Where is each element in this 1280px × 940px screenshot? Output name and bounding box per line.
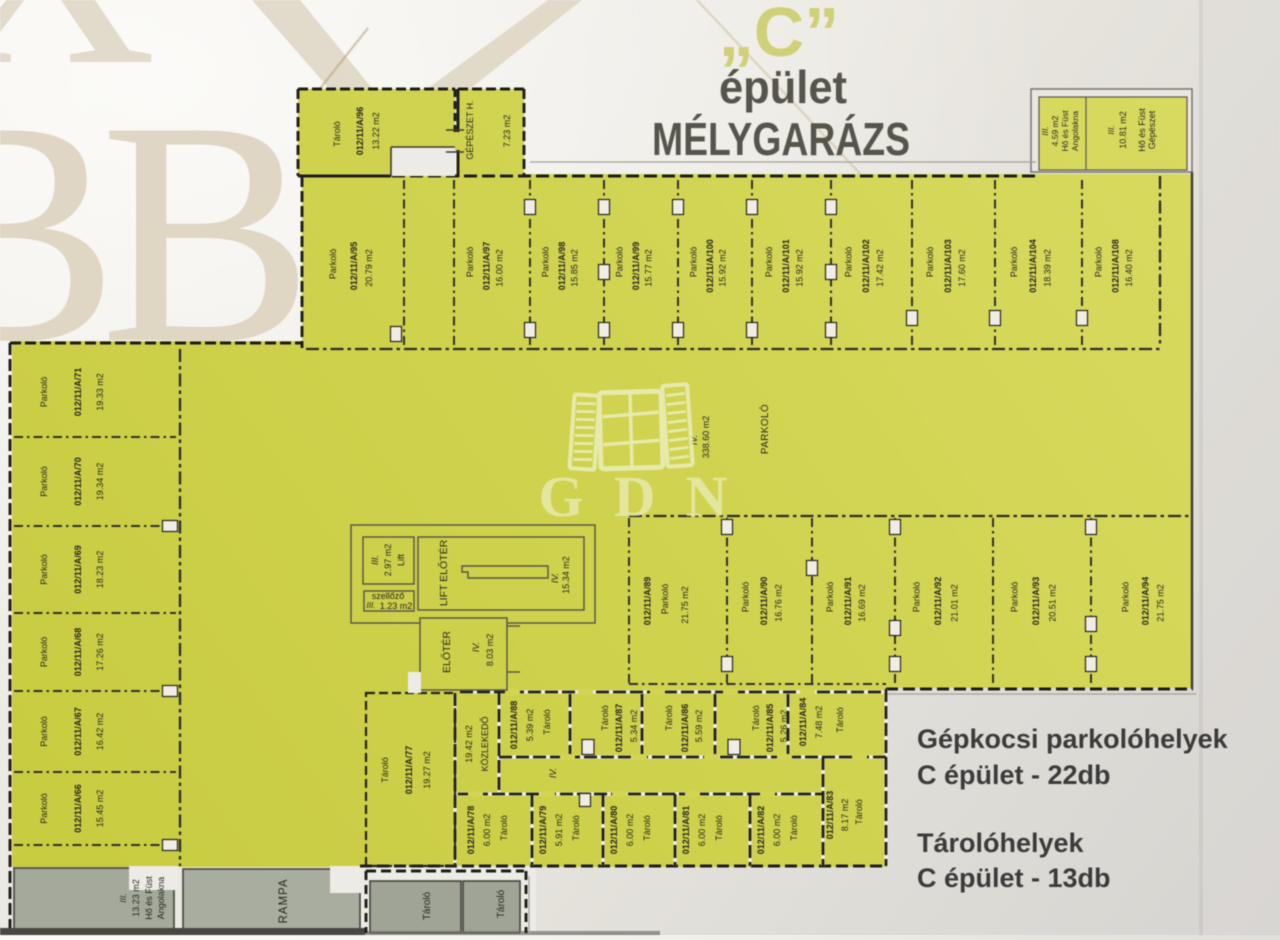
svg-text:Parkoló: Parkoló <box>740 582 750 613</box>
svg-text:6.00 m2: 6.00 m2 <box>697 814 707 847</box>
svg-text:Lift: Lift <box>396 554 406 567</box>
svg-text:012/11/A/103: 012/11/A/103 <box>943 239 953 293</box>
svg-text:012/11/A/67: 012/11/A/67 <box>73 707 83 756</box>
svg-text:012/11/A/81: 012/11/A/81 <box>681 806 691 855</box>
svg-text:Tároló: Tároló <box>664 705 674 731</box>
svg-text:012/11/A/87: 012/11/A/87 <box>614 704 624 753</box>
svg-text:Parkoló: Parkoló <box>825 582 835 613</box>
svg-text:16.69 m2: 16.69 m2 <box>857 584 867 622</box>
svg-text:Tároló: Tároló <box>422 891 433 920</box>
svg-text:Parkoló: Parkoló <box>925 247 935 278</box>
svg-text:Hő és Füst: Hő és Füst <box>144 876 154 920</box>
svg-text:RAMPA: RAMPA <box>278 878 290 923</box>
svg-text:19.34 m2: 19.34 m2 <box>95 463 105 501</box>
svg-text:Tároló: Tároló <box>332 121 342 147</box>
svg-text:Parkoló: Parkoló <box>465 247 475 278</box>
svg-text:Parkoló: Parkoló <box>39 637 49 668</box>
svg-text:GDN: GDN <box>539 464 758 529</box>
svg-text:III.: III. <box>1040 126 1050 135</box>
svg-text:Parkoló: Parkoló <box>39 466 49 497</box>
svg-text:4.59 m2: 4.59 m2 <box>1050 115 1060 146</box>
svg-text:13.23 m2: 13.23 m2 <box>131 879 141 917</box>
svg-text:21.75 m2: 21.75 m2 <box>1156 584 1166 622</box>
svg-text:Parkoló: Parkoló <box>39 793 49 824</box>
svg-text:5.34 m2: 5.34 m2 <box>629 710 639 743</box>
svg-text:2.97 m2: 2.97 m2 <box>383 544 393 577</box>
svg-text:Parkoló: Parkoló <box>615 247 625 278</box>
svg-text:Parkoló: Parkoló <box>1010 582 1020 613</box>
svg-text:16.00 m2: 16.00 m2 <box>495 249 505 287</box>
svg-text:Tároló: Tároló <box>571 815 581 841</box>
svg-text:012/11/A/93: 012/11/A/93 <box>1031 577 1041 626</box>
svg-text:Parkoló: Parkoló <box>328 249 338 280</box>
svg-text:012/11/A/88: 012/11/A/88 <box>509 701 519 750</box>
svg-text:Gépkocsi parkolóhelyek: Gépkocsi parkolóhelyek <box>917 724 1229 754</box>
svg-text:GÉPÉSZET H.: GÉPÉSZET H. <box>465 100 475 159</box>
svg-text:16.40 m2: 16.40 m2 <box>1124 249 1134 287</box>
svg-text:012/11/A/100: 012/11/A/100 <box>705 239 715 293</box>
svg-text:Tároló: Tároló <box>642 815 652 841</box>
svg-text:10.81 m2: 10.81 m2 <box>1118 111 1128 149</box>
svg-text:012/11/A/101: 012/11/A/101 <box>781 239 791 293</box>
svg-text:19.27 m2: 19.27 m2 <box>422 751 432 789</box>
svg-text:012/11/A/96: 012/11/A/96 <box>355 107 365 156</box>
svg-text:Tároló: Tároló <box>380 757 390 783</box>
svg-text:012/11/A/77: 012/11/A/77 <box>404 746 414 795</box>
svg-text:21.01 m2: 21.01 m2 <box>950 584 960 622</box>
svg-text:15.45 m2: 15.45 m2 <box>95 790 105 828</box>
svg-text:Parkoló: Parkoló <box>1009 247 1019 278</box>
svg-text:KÖZLEKEDŐ: KÖZLEKEDŐ <box>480 716 490 771</box>
svg-text:Tároló: Tároló <box>714 815 724 841</box>
svg-text:012/11/A/108: 012/11/A/108 <box>1111 239 1121 293</box>
svg-text:Parkoló: Parkoló <box>39 377 49 408</box>
svg-text:15.34 m2: 15.34 m2 <box>561 556 571 594</box>
svg-text:IV.: IV. <box>471 642 481 652</box>
svg-text:338.60 m2: 338.60 m2 <box>701 416 711 459</box>
svg-text:Parkoló: Parkoló <box>843 247 853 278</box>
svg-text:20.51 m2: 20.51 m2 <box>1048 584 1058 622</box>
svg-text:Parkoló: Parkoló <box>1121 582 1131 613</box>
svg-text:012/11/A/89: 012/11/A/89 <box>643 577 653 626</box>
svg-text:LIFT ELŐTÉR: LIFT ELŐTÉR <box>436 539 450 606</box>
svg-text:7.23 m2: 7.23 m2 <box>502 115 512 148</box>
svg-text:6.00 m2: 6.00 m2 <box>482 814 492 847</box>
svg-text:5.59 m2: 5.59 m2 <box>694 710 704 743</box>
svg-text:012/11/A/90: 012/11/A/90 <box>759 577 769 626</box>
svg-text:Hő és Füst: Hő és Füst <box>1137 108 1147 152</box>
svg-text:012/11/A/86: 012/11/A/86 <box>680 704 690 753</box>
svg-text:012/11/A/78: 012/11/A/78 <box>466 806 476 855</box>
svg-text:MÉLYGARÁZS: MÉLYGARÁZS <box>652 113 910 165</box>
svg-text:Tároló: Tároló <box>496 889 507 918</box>
svg-text:szellőző: szellőző <box>372 591 405 601</box>
svg-text:20.79 m2: 20.79 m2 <box>364 249 374 287</box>
svg-text:012/11/A/92: 012/11/A/92 <box>933 577 943 626</box>
svg-text:épület: épület <box>719 61 847 113</box>
svg-text:C épület - 22db: C épület - 22db <box>917 760 1111 790</box>
svg-text:21.75 m2: 21.75 m2 <box>680 586 690 624</box>
svg-text:Tárolóhelyek: Tárolóhelyek <box>917 828 1085 858</box>
svg-text:Parkoló: Parkoló <box>39 554 49 585</box>
svg-text:X: X <box>0 0 157 127</box>
svg-text:012/11/A/91: 012/11/A/91 <box>843 577 853 626</box>
svg-text:IV.: IV. <box>550 573 560 583</box>
svg-text:012/11/A/82: 012/11/A/82 <box>756 806 766 855</box>
svg-text:IV.: IV. <box>548 768 558 778</box>
svg-text:13.22 m2: 13.22 m2 <box>371 112 381 150</box>
svg-text:III.: III. <box>118 893 128 902</box>
svg-text:5.39 m2: 5.39 m2 <box>525 709 535 742</box>
svg-text:Angolakna: Angolakna <box>1070 111 1080 151</box>
svg-text:7.48 m2: 7.48 m2 <box>814 706 824 739</box>
svg-text:012/11/A/99: 012/11/A/99 <box>631 242 641 291</box>
svg-text:15.85 m2: 15.85 m2 <box>569 249 579 287</box>
svg-text:8.03 m2: 8.03 m2 <box>485 634 495 667</box>
svg-text:PARKOLÓ: PARKOLÓ <box>760 404 771 454</box>
svg-text:19.33 m2: 19.33 m2 <box>95 373 105 411</box>
svg-text:17.42 m2: 17.42 m2 <box>875 249 885 287</box>
svg-text:5.26 m2: 5.26 m2 <box>779 710 789 743</box>
svg-text:C épület - 13db: C épület - 13db <box>917 863 1111 893</box>
svg-text:6.00 m2: 6.00 m2 <box>625 814 635 847</box>
svg-text:012/11/A/95: 012/11/A/95 <box>349 242 359 291</box>
svg-text:15.92 m2: 15.92 m2 <box>717 249 727 287</box>
svg-text:012/11/A/70: 012/11/A/70 <box>73 457 83 506</box>
svg-text:012/11/A/97: 012/11/A/97 <box>482 242 492 291</box>
svg-text:Angolakna: Angolakna <box>156 877 166 920</box>
svg-text:012/11/A/102: 012/11/A/102 <box>861 239 871 293</box>
svg-text:Parkoló: Parkoló <box>764 247 774 278</box>
svg-text:Tároló: Tároló <box>854 799 864 825</box>
svg-text:012/11/A/104: 012/11/A/104 <box>1028 239 1038 293</box>
svg-text:Gépészet: Gépészet <box>1147 110 1157 149</box>
svg-text:19.42 m2: 19.42 m2 <box>464 725 474 763</box>
svg-text:Tároló: Tároló <box>542 709 552 735</box>
svg-text:Parkoló: Parkoló <box>660 584 670 615</box>
svg-text:III.: III. <box>367 601 376 610</box>
svg-text:6.00 m2: 6.00 m2 <box>772 814 782 847</box>
svg-text:Tároló: Tároló <box>751 705 761 731</box>
svg-text:17.26 m2: 17.26 m2 <box>95 633 105 671</box>
svg-text:012/11/A/85: 012/11/A/85 <box>765 704 775 753</box>
svg-text:012/11/A/80: 012/11/A/80 <box>609 806 619 855</box>
svg-text:Tároló: Tároló <box>499 815 509 841</box>
svg-text:Parkoló: Parkoló <box>39 716 49 747</box>
svg-text:Parkoló: Parkoló <box>541 247 551 278</box>
svg-text:012/11/A/94: 012/11/A/94 <box>1140 577 1150 626</box>
svg-text:16.42 m2: 16.42 m2 <box>95 713 105 751</box>
svg-text:Tároló: Tároló <box>600 705 610 731</box>
svg-text:012/11/A/84: 012/11/A/84 <box>798 698 808 747</box>
svg-text:Hő és Füst: Hő és Füst <box>1060 110 1070 152</box>
svg-text:1.23 m2: 1.23 m2 <box>380 601 413 611</box>
svg-text:Parkoló: Parkoló <box>1094 247 1104 278</box>
svg-text:Tároló: Tároló <box>835 707 845 733</box>
svg-text:012/11/A/68: 012/11/A/68 <box>73 628 83 677</box>
svg-text:ELŐTÉR: ELŐTÉR <box>439 631 453 673</box>
svg-text:III.: III. <box>1106 125 1116 134</box>
svg-text:012/11/A/71: 012/11/A/71 <box>73 368 83 417</box>
svg-text:18.23 m2: 18.23 m2 <box>95 551 105 589</box>
svg-text:15.92 m2: 15.92 m2 <box>795 249 805 287</box>
svg-text:Parkoló: Parkoló <box>912 582 922 613</box>
svg-text:012/11/A/98: 012/11/A/98 <box>557 242 567 291</box>
svg-text:17.60 m2: 17.60 m2 <box>957 249 967 287</box>
svg-text:8.17 m2: 8.17 m2 <box>840 799 850 832</box>
svg-text:18.39 m2: 18.39 m2 <box>1043 249 1053 287</box>
svg-text:III.: III. <box>370 555 380 565</box>
svg-text:012/11/A/83: 012/11/A/83 <box>825 791 835 840</box>
svg-text:16.76 m2: 16.76 m2 <box>773 584 783 622</box>
svg-text:Tároló: Tároló <box>789 815 799 841</box>
svg-text:012/11/A/69: 012/11/A/69 <box>73 545 83 594</box>
svg-text:5.91 m2: 5.91 m2 <box>554 814 564 847</box>
svg-text:Parkoló: Parkoló <box>689 247 699 278</box>
svg-text:012/11/A/79: 012/11/A/79 <box>538 806 548 855</box>
svg-text:012/11/A/66: 012/11/A/66 <box>73 784 83 833</box>
svg-text:15.77 m2: 15.77 m2 <box>643 249 653 287</box>
